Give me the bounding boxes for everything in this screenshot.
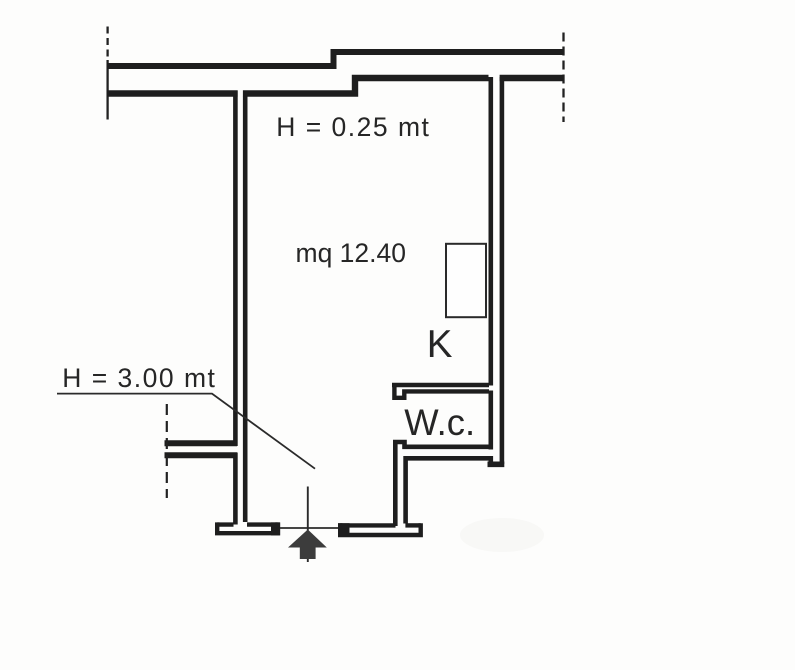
svg-text:mq 12.40: mq 12.40 bbox=[296, 238, 407, 268]
svg-text:H = 3.00 mt: H = 3.00 mt bbox=[62, 363, 216, 393]
svg-text:H = 0.25 mt: H = 0.25 mt bbox=[276, 112, 430, 142]
svg-text:K: K bbox=[427, 323, 453, 366]
svg-text:W.c.: W.c. bbox=[404, 402, 475, 443]
